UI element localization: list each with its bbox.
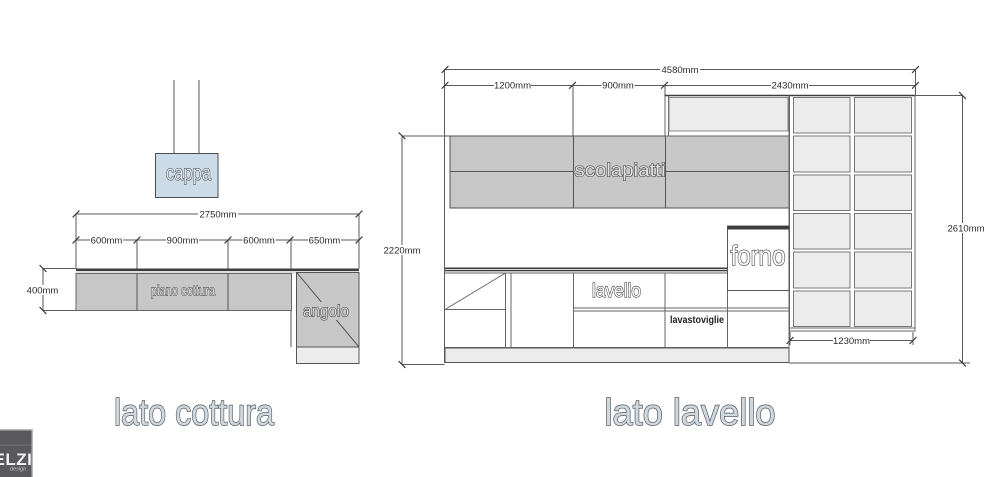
svg-text:900mm: 900mm bbox=[602, 81, 634, 92]
svg-text:2750mm: 2750mm bbox=[200, 209, 237, 220]
svg-text:2430mm: 2430mm bbox=[772, 81, 809, 92]
svg-text:650mm: 650mm bbox=[309, 235, 341, 246]
svg-text:900mm: 900mm bbox=[167, 235, 199, 246]
svg-text:piano cottura: piano cottura bbox=[151, 284, 216, 300]
svg-text:lavastoviglie: lavastoviglie bbox=[670, 315, 724, 326]
svg-text:lato cottura: lato cottura bbox=[114, 392, 274, 433]
svg-text:angolo: angolo bbox=[303, 303, 349, 321]
svg-text:1230mm: 1230mm bbox=[833, 336, 870, 347]
svg-text:4580mm: 4580mm bbox=[662, 65, 699, 76]
svg-text:scolapiatti: scolapiatti bbox=[575, 161, 666, 182]
svg-text:1200mm: 1200mm bbox=[494, 81, 531, 92]
svg-text:design: design bbox=[10, 467, 26, 473]
svg-text:lato lavello: lato lavello bbox=[605, 392, 776, 433]
svg-text:cappa: cappa bbox=[166, 162, 211, 185]
svg-text:forno: forno bbox=[731, 240, 786, 271]
svg-text:2610mm: 2610mm bbox=[948, 223, 985, 234]
svg-text:lavello: lavello bbox=[592, 281, 641, 302]
svg-text:2220mm: 2220mm bbox=[384, 245, 421, 256]
svg-text:400mm: 400mm bbox=[27, 285, 59, 296]
svg-text:600mm: 600mm bbox=[91, 235, 123, 246]
svg-text:600mm: 600mm bbox=[243, 235, 275, 246]
